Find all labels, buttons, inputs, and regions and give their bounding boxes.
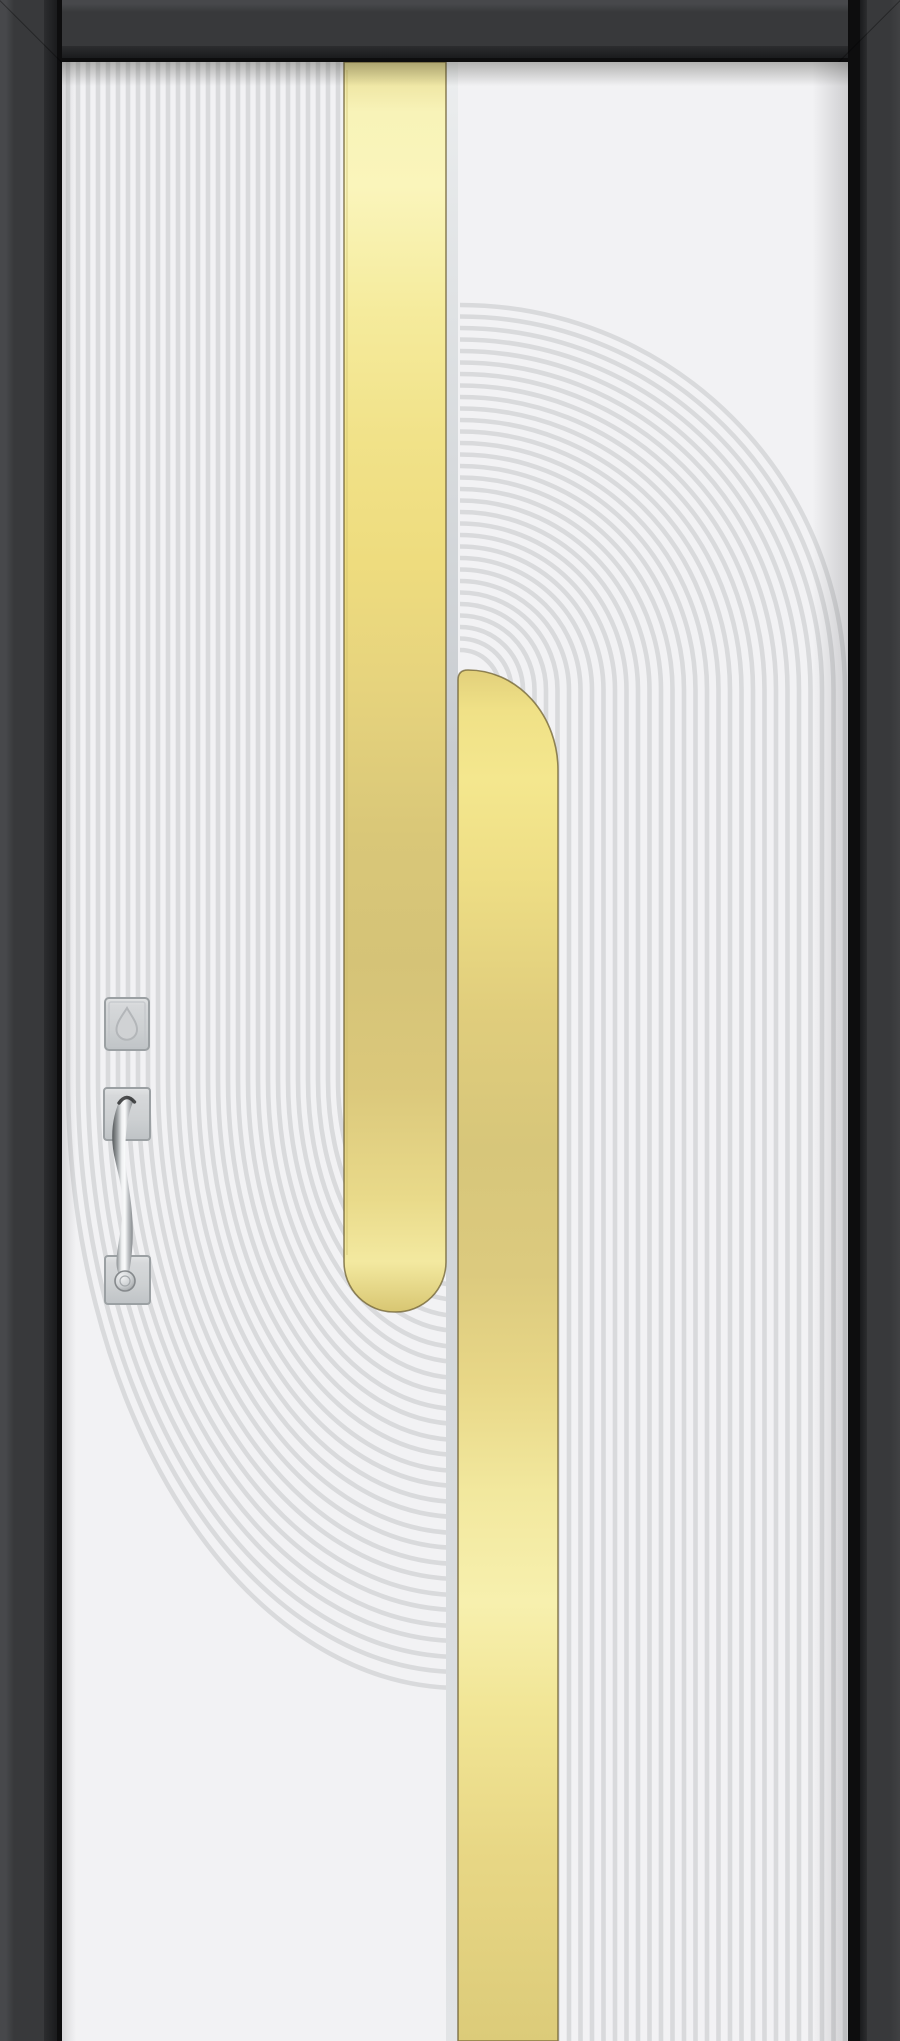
left-edge-shadow: [62, 62, 76, 2041]
frame-left: [0, 0, 44, 2041]
smart-lock: [105, 998, 149, 1050]
right-edge-shadow: [812, 62, 848, 2041]
frame-right-bevel: [860, 0, 867, 2041]
frame-top: [0, 0, 900, 46]
gold-stripe-divider: [446, 62, 458, 2041]
handle-knob: [115, 1271, 135, 1291]
top-frame-shadow: [62, 62, 848, 86]
door-product-photo: [0, 0, 900, 2041]
door-leaf-art: [62, 62, 848, 2041]
frame-left-bevel: [44, 0, 57, 2041]
frame-top-bevel: [0, 46, 900, 58]
frame-right-inner-line: [848, 0, 860, 2041]
door-leaf: [62, 62, 848, 2041]
gold-stripe-right: [458, 670, 558, 2041]
gold-stripe-left: [344, 62, 446, 1312]
frame-right: [867, 0, 900, 2041]
